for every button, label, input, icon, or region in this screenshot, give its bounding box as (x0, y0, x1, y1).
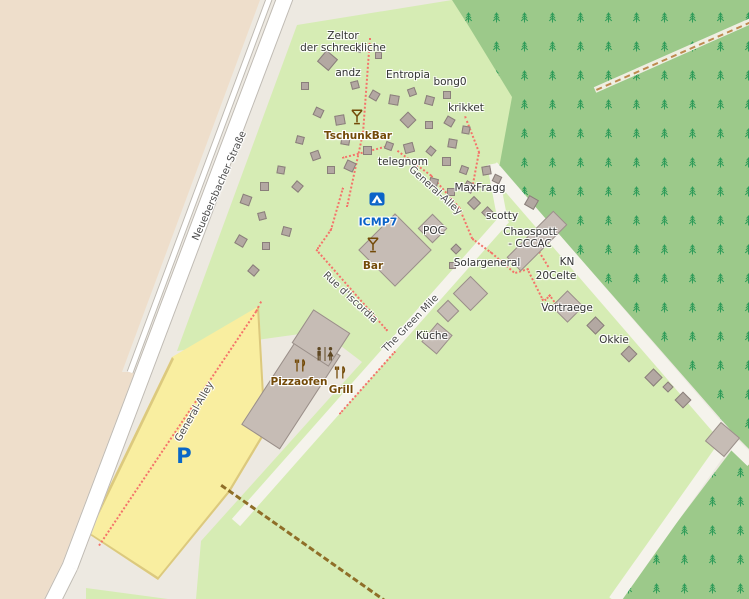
conifer-tree-icon (576, 66, 585, 78)
conifer-tree-icon (520, 8, 529, 20)
conifer-tree-icon (736, 463, 745, 475)
conifer-tree-icon (660, 211, 669, 223)
conifer-tree-icon (716, 385, 725, 397)
conifer-tree-icon (744, 211, 749, 223)
conifer-tree-icon (632, 211, 641, 223)
conifer-tree-icon (604, 95, 613, 107)
conifer-tree-icon (688, 356, 697, 368)
conifer-tree-icon (716, 327, 725, 339)
conifer-tree-icon (688, 153, 697, 165)
conifer-tree-icon (520, 66, 529, 78)
conifer-tree-icon (548, 37, 557, 49)
conifer-tree-icon (632, 124, 641, 136)
conifer-tree-icon (604, 240, 613, 252)
conifer-tree-icon (548, 95, 557, 107)
conifer-tree-icon (520, 124, 529, 136)
conifer-tree-icon (744, 8, 749, 20)
conifer-tree-icon (744, 414, 749, 426)
conifer-tree-icon (660, 8, 669, 20)
conifer-tree-icon (604, 8, 613, 20)
conifer-tree-icon (604, 124, 613, 136)
conifer-tree-icon (716, 95, 725, 107)
conifer-tree-icon (660, 182, 669, 194)
conifer-tree-icon (736, 492, 745, 504)
conifer-tree-icon (632, 269, 641, 281)
conifer-tree-icon (660, 327, 669, 339)
conifer-tree-icon (744, 269, 749, 281)
conifer-tree-icon (576, 153, 585, 165)
conifer-tree-icon (716, 8, 725, 20)
conifer-tree-icon (688, 66, 697, 78)
conifer-tree-icon (744, 385, 749, 397)
conifer-tree-icon (716, 269, 725, 281)
conifer-tree-icon (624, 579, 633, 591)
conifer-tree-icon (548, 153, 557, 165)
conifer-tree-icon (660, 240, 669, 252)
conifer-tree-icon (548, 8, 557, 20)
conifer-tree-icon (708, 550, 717, 562)
conifer-tree-icon (652, 550, 661, 562)
poi-label: Pizzaofen (271, 376, 328, 388)
fork-knife-icon (334, 365, 347, 384)
conifer-tree-icon (660, 66, 669, 78)
conifer-tree-icon (660, 95, 669, 107)
conifer-tree-icon (708, 521, 717, 533)
conifer-tree-icon (708, 579, 717, 591)
conifer-tree-icon (576, 124, 585, 136)
conifer-tree-icon (520, 182, 529, 194)
conifer-tree-icon (688, 211, 697, 223)
conifer-tree-icon (660, 269, 669, 281)
conifer-tree-icon (716, 182, 725, 194)
conifer-tree-icon (520, 153, 529, 165)
conifer-tree-icon (744, 66, 749, 78)
conifer-tree-icon (736, 550, 745, 562)
conifer-tree-icon (548, 182, 557, 194)
conifer-tree-icon (688, 269, 697, 281)
conifer-tree-icon (744, 240, 749, 252)
conifer-tree-icon (688, 8, 697, 20)
conifer-tree-icon (680, 550, 689, 562)
conifer-tree-icon (548, 66, 557, 78)
conifer-tree-icon (604, 269, 613, 281)
conifer-tree-icon (744, 327, 749, 339)
conifer-tree-icon (632, 240, 641, 252)
conifer-tree-icon (688, 95, 697, 107)
conifer-tree-icon (744, 124, 749, 136)
toilets-icon (315, 347, 336, 366)
conifer-tree-icon (464, 8, 473, 20)
conifer-tree-icon (660, 124, 669, 136)
conifer-tree-icon (632, 37, 641, 49)
conifer-tree-icon (576, 95, 585, 107)
conifer-tree-icon (744, 153, 749, 165)
conifer-tree-icon (576, 8, 585, 20)
conifer-tree-icon (716, 240, 725, 252)
conifer-tree-icon (492, 8, 501, 20)
conifer-tree-icon (688, 240, 697, 252)
conifer-tree-icon (604, 66, 613, 78)
conifer-tree-icon (576, 37, 585, 49)
conifer-tree-icon (744, 95, 749, 107)
conifer-tree-icon (716, 66, 725, 78)
conifer-tree-icon (632, 95, 641, 107)
conifer-tree-icon (632, 8, 641, 20)
conifer-tree-icon (744, 298, 749, 310)
conifer-tree-icon (548, 124, 557, 136)
conifer-tree-icon (576, 182, 585, 194)
conifer-tree-icon (632, 182, 641, 194)
conifer-tree-icon (688, 37, 697, 49)
conifer-tree-icon (604, 37, 613, 49)
conifer-tree-icon (680, 579, 689, 591)
conifer-tree-icon (576, 211, 585, 223)
conifer-tree-icon (736, 579, 745, 591)
conifer-tree-icon (680, 521, 689, 533)
conifer-tree-icon (736, 521, 745, 533)
conifer-tree-icon (688, 298, 697, 310)
conifer-tree-icon (716, 414, 725, 426)
conifer-tree-icon (604, 153, 613, 165)
conifer-tree-icon (492, 37, 501, 49)
conifer-tree-icon (716, 298, 725, 310)
conifer-tree-icon (744, 356, 749, 368)
conifer-tree-icon (708, 463, 717, 475)
conifer-tree-icon (520, 37, 529, 49)
conifer-tree-icon (716, 356, 725, 368)
conifer-tree-icon (632, 66, 641, 78)
conifer-tree-icon (632, 153, 641, 165)
conifer-tree-icon (520, 95, 529, 107)
conifer-tree-icon (604, 182, 613, 194)
conifer-tree-icon (744, 182, 749, 194)
conifer-tree-icon (652, 579, 661, 591)
map-canvas[interactable]: Zeltor der schrecklicheandzEntropiabong0… (0, 0, 749, 599)
conifer-tree-icon (576, 240, 585, 252)
conifer-tree-icon (744, 37, 749, 49)
fork-knife-icon (294, 358, 307, 377)
conifer-tree-icon (716, 211, 725, 223)
conifer-tree-icon (548, 211, 557, 223)
conifer-tree-icon (688, 182, 697, 194)
conifer-tree-icon (716, 153, 725, 165)
conifer-tree-icon (688, 327, 697, 339)
conifer-tree-icon (632, 298, 641, 310)
conifer-tree-icon (660, 298, 669, 310)
conifer-tree-icon (716, 37, 725, 49)
conifer-tree-icon (688, 124, 697, 136)
conifer-tree-icon (660, 153, 669, 165)
conifer-tree-icon (716, 124, 725, 136)
conifer-tree-icon (708, 492, 717, 504)
conifer-tree-icon (604, 211, 613, 223)
conifer-tree-icon (688, 385, 697, 397)
conifer-tree-icon (660, 37, 669, 49)
